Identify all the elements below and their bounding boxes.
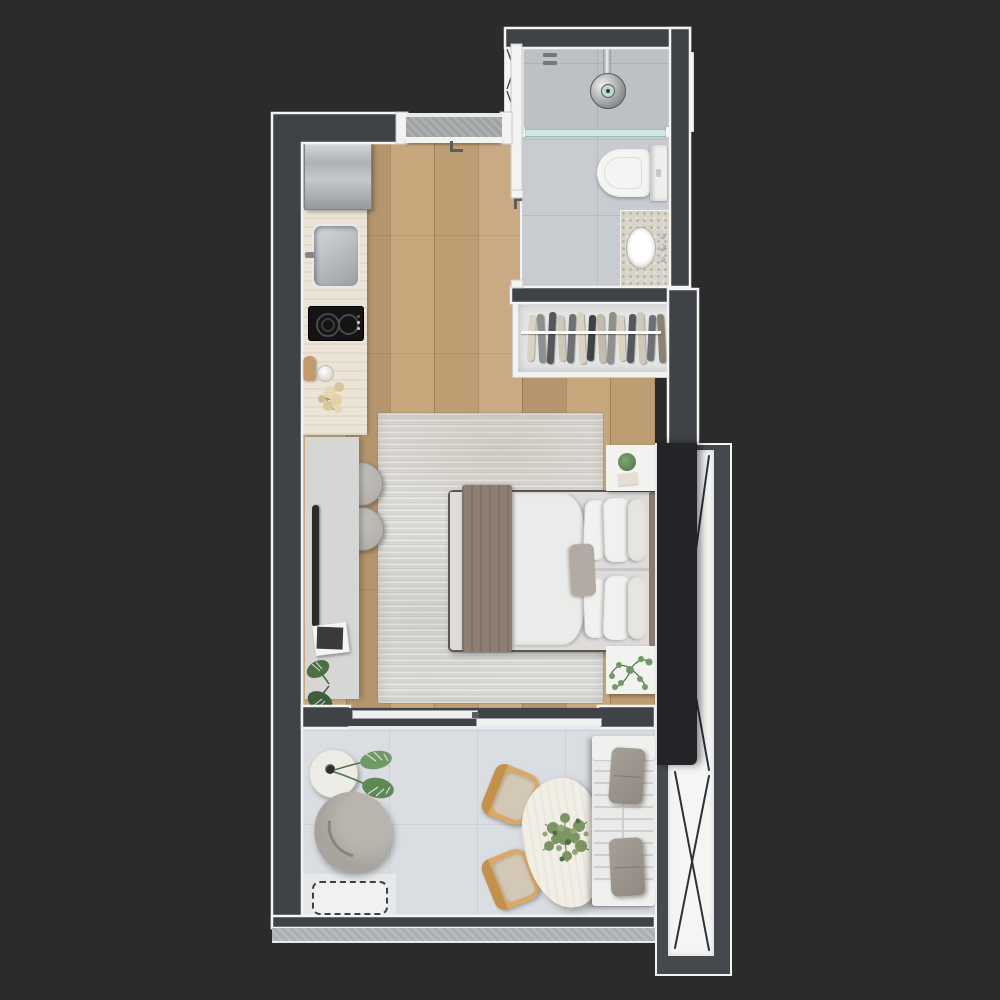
entry-door-handle xyxy=(450,149,463,152)
wall-bathroom-top xyxy=(505,28,690,48)
wall-bottom xyxy=(272,916,655,928)
bathroom-partition-wall xyxy=(511,44,522,192)
bathroom-door-jamb xyxy=(511,280,523,288)
curtain-panel xyxy=(657,443,697,765)
sliding-door-leaf xyxy=(352,710,478,719)
ac-equipment-outline xyxy=(312,881,388,915)
wall-bathroom-bottom xyxy=(511,287,690,303)
balcony-sill xyxy=(272,928,655,943)
wall-bathroom-right xyxy=(670,28,690,303)
sliding-door-handle xyxy=(472,712,479,718)
sofa-pillow xyxy=(609,837,646,897)
wall-closet-right xyxy=(668,289,698,447)
bathroom-door-jamb xyxy=(511,190,523,198)
floor-plan xyxy=(0,0,1000,1000)
armchair xyxy=(312,788,396,876)
table-plant xyxy=(531,804,599,872)
entry-landing xyxy=(406,117,502,139)
entry-door xyxy=(406,137,502,143)
balcony-threshold xyxy=(348,726,600,729)
wall-slide-stub-left xyxy=(302,706,350,728)
wall-slide-stub-right xyxy=(598,706,655,728)
sofa-pillow xyxy=(608,747,646,805)
walls xyxy=(0,0,1000,1000)
